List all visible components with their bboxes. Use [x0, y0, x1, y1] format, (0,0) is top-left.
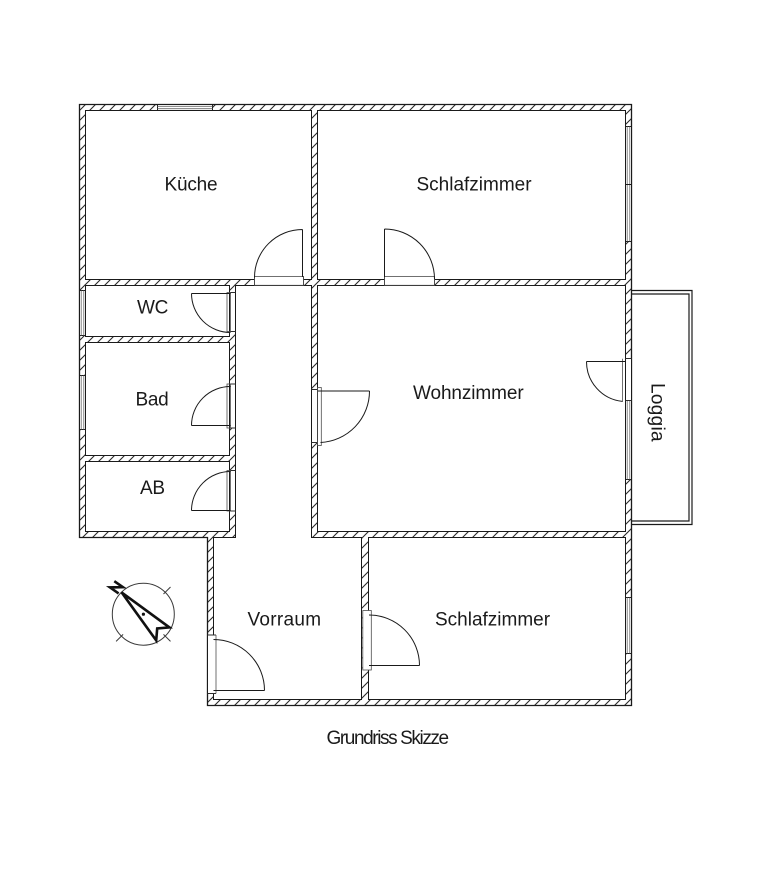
svg-text:WC: WC	[137, 298, 168, 319]
svg-text:Schlafzimmer: Schlafzimmer	[417, 175, 533, 196]
svg-text:Vorraum: Vorraum	[248, 610, 322, 631]
svg-text:Küche: Küche	[165, 175, 218, 196]
svg-text:Schlafzimmer: Schlafzimmer	[435, 610, 551, 631]
svg-text:Grundriss Skizze: Grundriss Skizze	[327, 728, 449, 749]
svg-text:AB: AB	[140, 478, 165, 499]
svg-text:Bad: Bad	[136, 390, 169, 411]
svg-text:Loggia: Loggia	[646, 383, 667, 442]
svg-text:Wohnzimmer: Wohnzimmer	[413, 383, 524, 404]
